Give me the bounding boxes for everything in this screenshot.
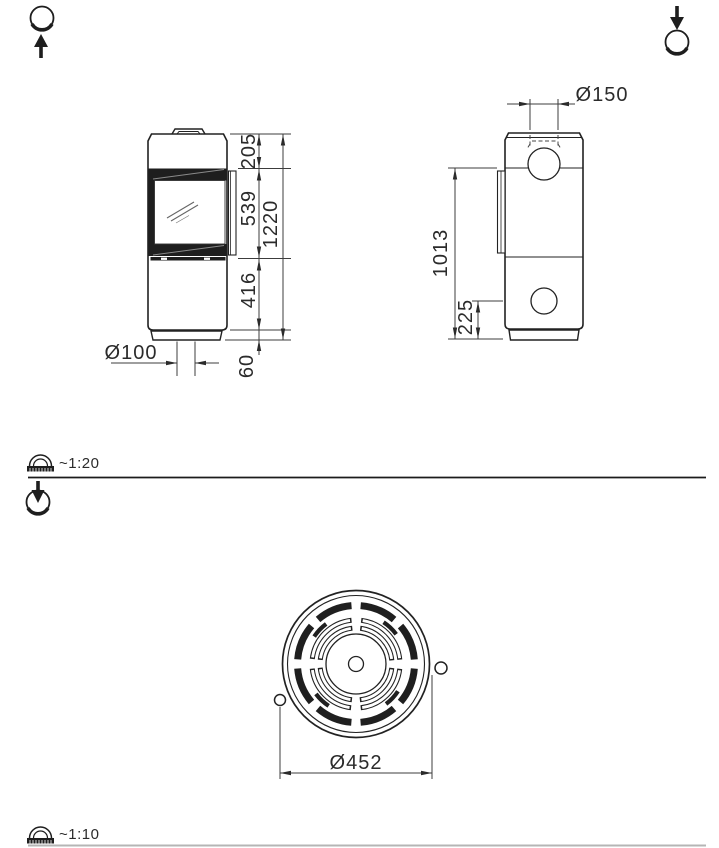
dim-label-inlet-height: 225: [456, 299, 476, 335]
scale-icon-upper: [27, 455, 54, 472]
ruler-icon: [27, 466, 54, 472]
top-view-drawing: [275, 591, 448, 780]
center-knob: [349, 657, 364, 672]
top-view-direction-icon: [27, 481, 50, 514]
dim-label-body-dia: Ø452: [330, 753, 383, 773]
front-view-drawing: [111, 129, 291, 376]
dim-label-flue-height: 1013: [431, 229, 451, 278]
scale-label-elevations: ~1:20: [59, 456, 99, 471]
rear-view-direction-icon: [666, 6, 689, 54]
dim-label-total-height: 1220: [261, 200, 281, 249]
ruler-icon: [27, 838, 54, 844]
plinth-front: [151, 331, 222, 340]
dim-label-top-section: 205: [239, 133, 259, 169]
drawing-page: 205 539 416 60 1220 Ø100 Ø150 1013 225 Ø…: [0, 0, 719, 848]
arrow-down-icon: [32, 490, 45, 503]
door-frame-left: [149, 169, 155, 257]
front-view-direction-icon: [31, 7, 54, 59]
technical-drawing-canvas: [0, 0, 719, 848]
door-handle-strip: [229, 171, 237, 255]
plinth-side: [509, 330, 579, 340]
right-lug: [435, 662, 447, 674]
flue-outlet-circle: [528, 148, 560, 180]
dim-label-door-window: 539: [239, 190, 259, 226]
dim-label-plinth: 60: [237, 354, 257, 378]
dim-label-lower-section: 416: [239, 272, 259, 308]
arrow-down-icon: [670, 17, 684, 30]
scale-icon-lower: [27, 827, 54, 843]
door-glass: [155, 181, 226, 245]
left-lug: [275, 695, 286, 706]
dim-label-air-inlet-dia: Ø100: [105, 343, 158, 363]
scale-label-top-view: ~1:10: [59, 827, 99, 842]
dim-label-flue-dia: Ø150: [576, 85, 629, 105]
arrow-up-icon: [34, 34, 48, 47]
air-inlet-circle: [531, 288, 557, 314]
